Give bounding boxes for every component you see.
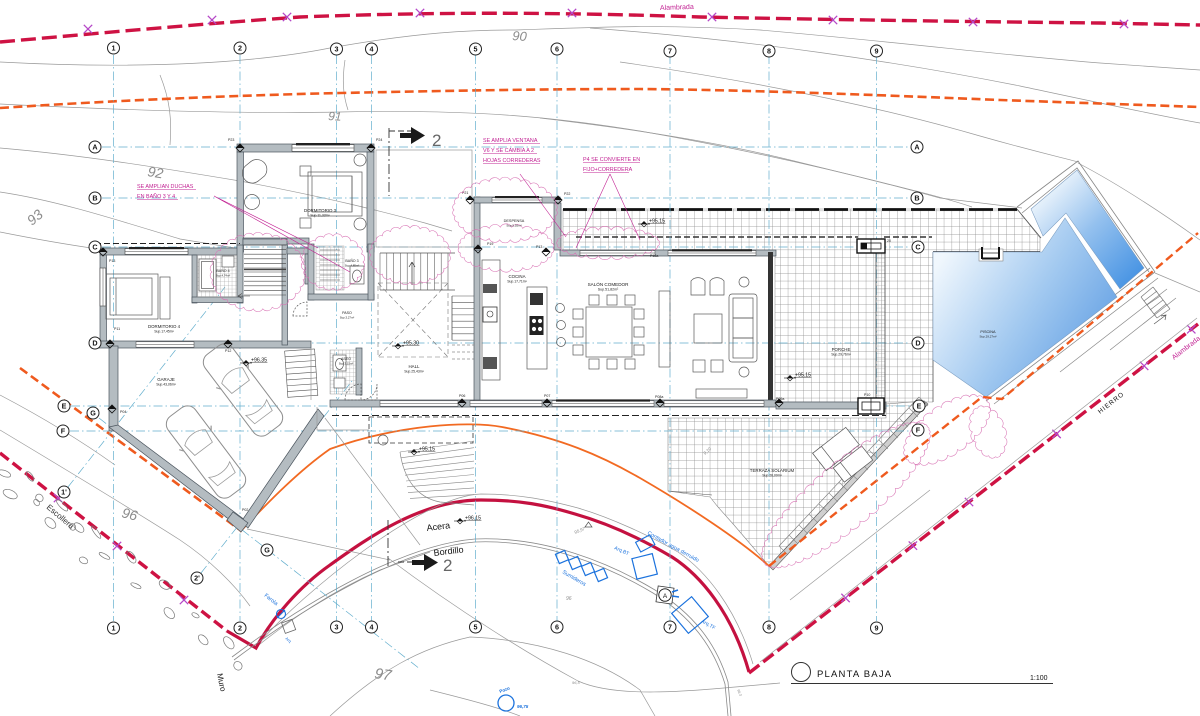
- svg-text:6: 6: [555, 623, 559, 632]
- svg-text:9: 9: [875, 624, 879, 633]
- svg-text:P06: P06: [459, 394, 465, 398]
- svg-text:2: 2: [238, 624, 242, 633]
- svg-text:DORMITORIO 3: DORMITORIO 3: [304, 208, 337, 213]
- svg-text:90: 90: [512, 28, 528, 44]
- svg-text:Sup.3,27m²: Sup.3,27m²: [340, 316, 355, 320]
- svg-text:PASO: PASO: [342, 311, 352, 315]
- svg-text:D: D: [915, 339, 920, 348]
- svg-text:+96.15: +96.15: [465, 516, 481, 522]
- svg-text:C: C: [92, 243, 97, 252]
- svg-text:5: 5: [474, 45, 478, 54]
- svg-text:1: 1: [112, 44, 116, 53]
- svg-text:G: G: [264, 546, 270, 555]
- svg-text:DORMITORIO 4: DORMITORIO 4: [148, 324, 181, 329]
- svg-text:SALÓN COMEDOR: SALÓN COMEDOR: [588, 281, 630, 287]
- svg-text:G: G: [90, 409, 96, 418]
- svg-text:B: B: [92, 194, 97, 203]
- svg-text:F: F: [916, 426, 921, 435]
- svg-text:P10: P10: [864, 393, 870, 397]
- svg-text:5: 5: [474, 623, 478, 632]
- svg-text:FIJO+CORREDERA: FIJO+CORREDERA: [583, 167, 633, 173]
- svg-text:SE AMPLIAN DUCHAS: SE AMPLIAN DUCHAS: [137, 184, 194, 190]
- svg-text:Sup.3,15m²: Sup.3,15m²: [339, 362, 354, 366]
- svg-text:HOJAS CORREDERAS: HOJAS CORREDERAS: [483, 158, 541, 164]
- svg-text:3: 3: [335, 45, 339, 54]
- svg-text:P24: P24: [376, 138, 382, 142]
- svg-text:P23: P23: [228, 138, 234, 142]
- svg-text:P19: P19: [487, 242, 493, 246]
- svg-text:Sup.25,43m²: Sup.25,43m²: [404, 370, 424, 374]
- svg-text:2': 2': [194, 574, 200, 583]
- svg-text:A: A: [663, 593, 668, 600]
- svg-text:9: 9: [875, 47, 879, 56]
- svg-text:BAÑO 4: BAÑO 4: [216, 268, 229, 273]
- svg-text:TERRAZA SOLARIUM: TERRAZA SOLARIUM: [750, 468, 795, 473]
- svg-text:2: 2: [432, 131, 441, 150]
- svg-text:7: 7: [668, 47, 672, 56]
- svg-text:PLANTA BAJA: PLANTA BAJA: [817, 669, 892, 680]
- svg-text:4: 4: [370, 623, 374, 632]
- svg-text:HALL: HALL: [409, 364, 421, 369]
- svg-text:ASEO: ASEO: [341, 357, 351, 361]
- svg-text:SE AMPLIA VENTANA: SE AMPLIA VENTANA: [483, 138, 538, 144]
- svg-text:92: 92: [147, 163, 165, 181]
- svg-text:B: B: [914, 194, 919, 203]
- svg-text:1:100: 1:100: [1030, 675, 1048, 682]
- svg-text:Sup.43,06m²: Sup.43,06m²: [156, 383, 176, 387]
- svg-text:Sup.11,32m²: Sup.11,32m²: [310, 214, 330, 218]
- svg-text:P18a: P18a: [650, 254, 658, 258]
- svg-text:91: 91: [328, 109, 342, 124]
- svg-text:8: 8: [767, 47, 771, 56]
- svg-text:P13: P13: [536, 245, 542, 249]
- svg-text:P07: P07: [544, 394, 550, 398]
- svg-text:7: 7: [668, 623, 672, 632]
- svg-text:1': 1': [61, 488, 67, 497]
- svg-text:Alambrada: Alambrada: [660, 4, 694, 12]
- svg-text:20: 20: [887, 239, 891, 243]
- svg-text:P08a: P08a: [655, 395, 663, 399]
- svg-text:8: 8: [767, 623, 771, 632]
- svg-text:P02: P02: [242, 508, 248, 512]
- svg-text:EN BAÑO 3 Y 4: EN BAÑO 3 Y 4: [137, 193, 175, 200]
- svg-text:F: F: [61, 427, 66, 436]
- svg-text:Sup.4,74m²: Sup.4,74m²: [216, 274, 231, 278]
- svg-text:6: 6: [555, 45, 559, 54]
- svg-text:+96.35: +96.35: [251, 358, 267, 364]
- svg-text:Sup.51,82m²: Sup.51,82m²: [598, 288, 619, 292]
- svg-text:2: 2: [443, 556, 452, 575]
- svg-text:96,75: 96,75: [517, 704, 529, 709]
- svg-text:P21: P21: [462, 191, 468, 195]
- svg-text:4: 4: [370, 45, 374, 54]
- svg-text:PORCHE: PORCHE: [832, 347, 851, 352]
- svg-text:Sup.5,55m²: Sup.5,55m²: [506, 224, 521, 228]
- svg-text:P11: P11: [114, 327, 120, 331]
- svg-text:A: A: [92, 143, 97, 152]
- svg-text:+95.15: +95.15: [419, 447, 435, 453]
- svg-text:Sup.17,71m²: Sup.17,71m²: [507, 280, 527, 284]
- svg-text:96,5: 96,5: [572, 680, 581, 685]
- svg-text:P13: P13: [109, 259, 115, 263]
- svg-text:3: 3: [335, 623, 339, 632]
- svg-text:COCINA: COCINA: [508, 274, 525, 279]
- svg-text:Sup.29,27m²: Sup.29,27m²: [980, 335, 997, 339]
- svg-text:P4 SE CONVIERTE EN: P4 SE CONVIERTE EN: [583, 157, 640, 163]
- svg-text:1: 1: [112, 624, 116, 633]
- svg-text:2: 2: [238, 44, 242, 53]
- svg-text:96: 96: [566, 596, 572, 602]
- svg-text:P22: P22: [564, 192, 570, 196]
- svg-text:PISCINA: PISCINA: [980, 330, 996, 334]
- svg-text:GARAJE: GARAJE: [157, 377, 175, 382]
- svg-text:+95.15: +95.15: [649, 219, 665, 225]
- svg-text:DESPENSA: DESPENSA: [504, 219, 525, 223]
- svg-text:Sup.4,85m²: Sup.4,85m²: [345, 264, 360, 268]
- svg-text:V6 Y SE CAMBIA A 2: V6 Y SE CAMBIA A 2: [483, 148, 534, 154]
- svg-text:E: E: [62, 402, 67, 411]
- svg-text:P12: P12: [225, 349, 231, 353]
- svg-text:C: C: [915, 243, 920, 252]
- svg-text:A: A: [914, 143, 919, 152]
- svg-text:Sup.26,09m²: Sup.26,09m²: [762, 474, 782, 478]
- svg-text:BAÑO 3: BAÑO 3: [345, 258, 358, 263]
- svg-text:D: D: [92, 339, 97, 348]
- svg-text:97: 97: [373, 665, 393, 685]
- svg-text:+95.15: +95.15: [795, 373, 811, 379]
- svg-text:Sup.17,45m²: Sup.17,45m²: [154, 330, 174, 334]
- svg-text:+95.30: +95.30: [403, 341, 419, 347]
- svg-text:Sup.29,76m²: Sup.29,76m²: [831, 353, 851, 357]
- svg-text:P09a: P09a: [776, 397, 784, 401]
- svg-text:E: E: [917, 402, 922, 411]
- svg-text:P04: P04: [120, 410, 126, 414]
